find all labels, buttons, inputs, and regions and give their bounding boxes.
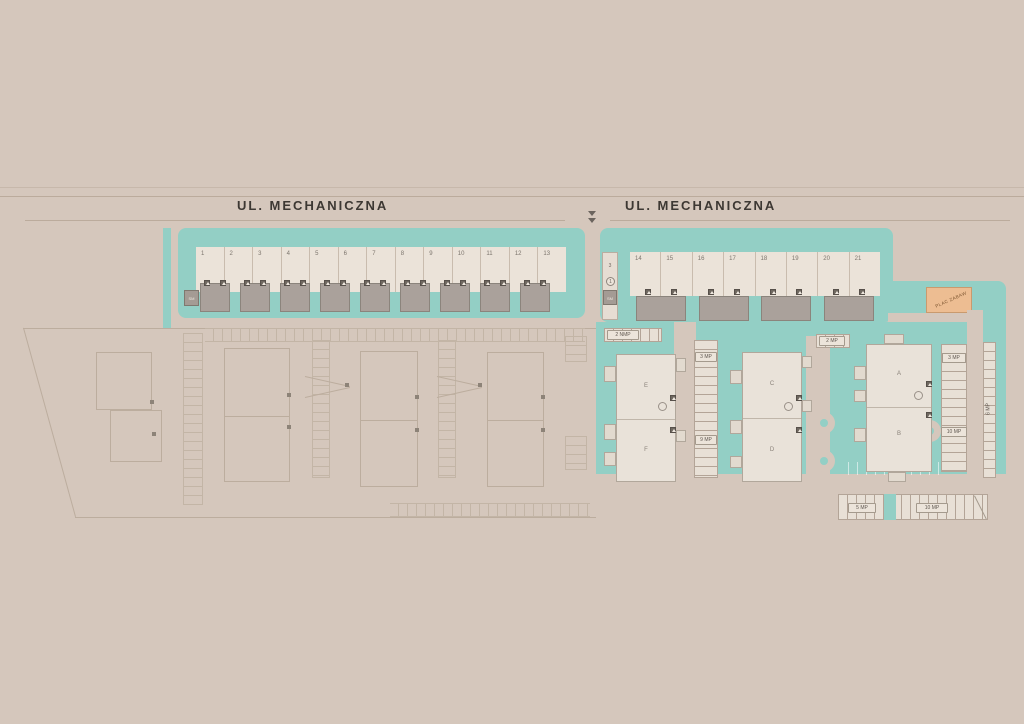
entrance-arrow-icon (734, 289, 740, 295)
outline-parking-strip (312, 340, 330, 478)
garage-block (200, 283, 230, 312)
porch (676, 358, 686, 372)
garage-block (520, 283, 550, 312)
parking-label: 10 MP (941, 427, 967, 437)
curb-line-right (610, 220, 1010, 221)
parking-label: 3 MP (695, 352, 717, 362)
parking-label: 2 MP (819, 336, 845, 346)
building-cd[interactable]: C D (742, 352, 802, 482)
entrance-arrow-icon (796, 427, 802, 433)
turning-circle (813, 412, 835, 434)
entrance-arrow-icon (926, 381, 932, 387)
entrance-arrow-icon (670, 427, 676, 433)
parking-strip (941, 344, 967, 472)
outline-parking-row (205, 328, 585, 342)
building-ef[interactable]: E F (616, 354, 676, 482)
outline-building (110, 410, 162, 462)
building-divider (617, 419, 675, 420)
entrance-arrow-icon (796, 289, 802, 295)
garage-block (400, 283, 430, 312)
building-divider (867, 407, 931, 408)
porch (604, 424, 616, 440)
curb-line-left (25, 220, 565, 221)
entrance-arrow-icon (859, 289, 865, 295)
section-circle-icon (784, 402, 793, 411)
entrance-arrow-icon (380, 280, 386, 286)
lane-circle-marker: 1 (606, 277, 615, 286)
parking-label: 9 MP (695, 435, 717, 445)
entrance-arrow-icon (770, 289, 776, 295)
entrance-arrow-icon (671, 289, 677, 295)
building-f-label: F (617, 447, 675, 453)
entrance-arrow-icon (833, 289, 839, 295)
entrance-marker (541, 395, 545, 399)
outline-parking-strip (183, 333, 203, 505)
porch (730, 420, 742, 434)
entrance-arrow-icon (670, 395, 676, 401)
porch (802, 400, 812, 412)
entrance-arrow-icon (645, 289, 651, 295)
playground-label: PLAC ZABAW (930, 288, 972, 310)
playground[interactable]: PLAC ZABAW (926, 287, 972, 313)
entrance-arrow-icon (708, 289, 714, 295)
parking-label: 3 MP (942, 353, 966, 363)
entrance-arrow-icon (364, 280, 370, 286)
side-lane: 3 1 (602, 252, 618, 320)
entrance-arrow-icon (524, 280, 530, 286)
porch (604, 366, 616, 382)
entrance-marker (345, 383, 349, 387)
porch (854, 366, 866, 380)
site-plan: UL. MECHANICZNA UL. MECHANICZNA 1 2 3 4 … (0, 0, 1024, 724)
lane-number: 3 (603, 263, 617, 269)
entrance-arrow-icon (404, 280, 410, 286)
entrance-arrow-icon (204, 280, 210, 286)
entrance-marker (287, 393, 291, 397)
green-divider (884, 494, 896, 520)
entrance-marker (150, 400, 154, 404)
entrance-marker (415, 428, 419, 432)
building-b-label: B (867, 431, 931, 437)
porch (854, 428, 866, 442)
entrance-chevron-icon (588, 211, 596, 216)
turning-circle (813, 450, 835, 472)
entrance-arrow-icon (540, 280, 546, 286)
porch (676, 430, 686, 442)
garage-block (824, 296, 874, 321)
porch (604, 452, 616, 466)
entrance-arrow-icon (796, 395, 802, 401)
entrance-marker (541, 428, 545, 432)
building-c-label: C (743, 381, 801, 387)
entrance-arrow-icon (500, 280, 506, 286)
trash-shed-right: SM (603, 290, 617, 305)
porch (888, 472, 906, 482)
outline-parking-row (390, 503, 590, 517)
entrance-arrow-icon (340, 280, 346, 286)
building-a-label: A (867, 371, 931, 377)
garage-block (240, 283, 270, 312)
entrance-chevron-icon (588, 218, 596, 223)
garage-block (480, 283, 510, 312)
parking-label: 10 MP (916, 503, 948, 513)
parking-label: 2 NMP (607, 330, 639, 340)
entrance-marker (152, 432, 156, 436)
section-circle-icon (914, 391, 923, 400)
garage-block (280, 283, 310, 312)
outline-building (96, 352, 152, 410)
entrance-arrow-icon (300, 280, 306, 286)
parking-label: 6 MP (985, 401, 995, 418)
street-label-left: UL. MECHANICZNA (237, 198, 388, 213)
plot-band-right: 14 15 16 17 18 19 20 21 (630, 252, 880, 296)
building-divider (743, 418, 801, 419)
garage-block (699, 296, 749, 321)
entrance-arrow-icon (244, 280, 250, 286)
entrance-arrow-icon (220, 280, 226, 286)
entrance-arrow-icon (460, 280, 466, 286)
trash-shed-left: SM (184, 290, 199, 306)
garage-block (636, 296, 686, 321)
boundary-line (23, 328, 76, 517)
garage-block (761, 296, 811, 321)
entrance-marker (415, 395, 419, 399)
outline-building (487, 352, 544, 487)
entrance-arrow-icon (484, 280, 490, 286)
building-d-label: D (743, 447, 801, 453)
entrance-marker (287, 425, 291, 429)
outline-building (224, 348, 290, 482)
plot-15[interactable]: 15 (661, 252, 692, 296)
entrance-arrow-icon (420, 280, 426, 286)
porch (854, 390, 866, 402)
building-e-label: E (617, 383, 675, 389)
section-circle-icon (658, 402, 667, 411)
entrance-arrow-icon (260, 280, 266, 286)
porch (884, 334, 904, 344)
boundary-line (75, 517, 596, 518)
garage-block (360, 283, 390, 312)
outline-parking-strip (565, 336, 587, 362)
plot-block-right: 3 1 SM 14 15 16 17 18 19 20 21 (600, 228, 893, 322)
green-strip (163, 228, 171, 328)
road (967, 310, 983, 478)
street-edge-line (0, 196, 1024, 197)
garage-block (320, 283, 350, 312)
entrance-arrow-icon (444, 280, 450, 286)
entrance-arrow-icon (926, 412, 932, 418)
entrance-marker (478, 383, 482, 387)
entrance-arrow-icon (284, 280, 290, 286)
porch (802, 356, 812, 368)
outline-parking-strip (438, 340, 456, 478)
outline-building (360, 351, 418, 487)
porch (730, 370, 742, 384)
building-ab[interactable]: A B (866, 344, 932, 472)
street-label-right: UL. MECHANICZNA (625, 198, 776, 213)
parking-label: 5 MP (848, 503, 876, 513)
porch (730, 456, 742, 468)
entrance-arrow-icon (324, 280, 330, 286)
garage-block (440, 283, 470, 312)
plot-19[interactable]: 19 (787, 252, 818, 296)
road (674, 322, 696, 474)
outline-parking-strip (565, 436, 587, 470)
plot-block-left: 1 2 3 4 5 6 7 8 9 10 11 12 13 SM (178, 228, 585, 318)
street-boundary-line (0, 187, 1024, 188)
